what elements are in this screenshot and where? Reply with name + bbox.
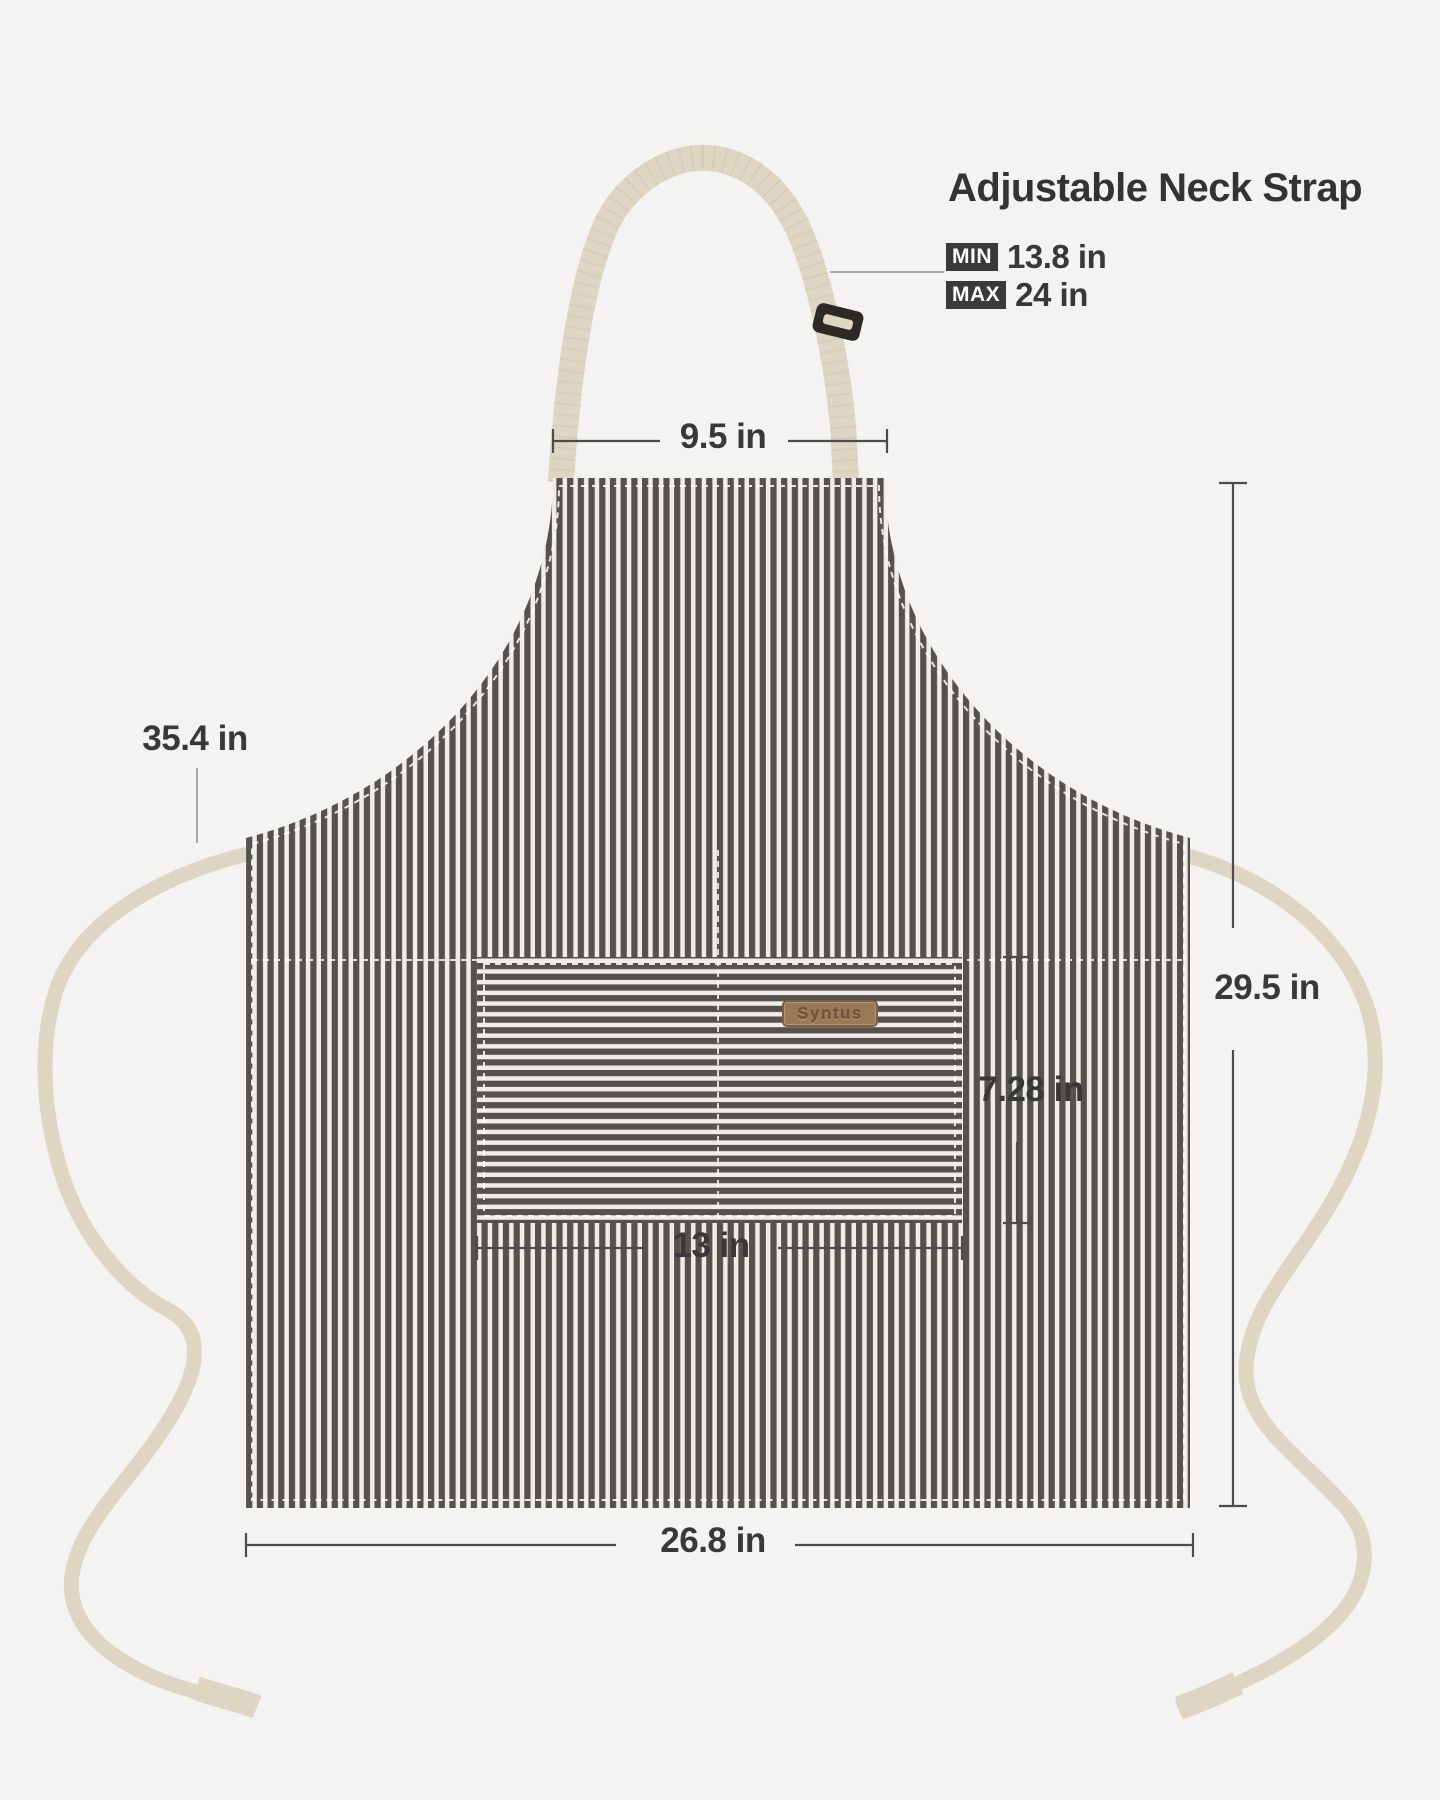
- left-tie-strap-tip: [196, 1688, 257, 1707]
- max-badge: MAX: [946, 281, 1006, 309]
- dim-label-height: 29.5 in: [1214, 968, 1319, 1008]
- right-tie-strap-tip: [1179, 1683, 1238, 1708]
- apron-pocket: [477, 957, 962, 1223]
- neck-strap-max-row: MAX 24 in: [946, 276, 1088, 314]
- dim-label-tie-length: 35.4 in: [142, 719, 247, 759]
- min-value: 13.8 in: [1007, 238, 1106, 276]
- diagram-title: Adjustable Neck Strap: [948, 166, 1362, 211]
- brand-label-patch: Syntus: [782, 1000, 878, 1027]
- dim-label-pocket-height: 7.28 in: [978, 1070, 1083, 1110]
- apron-dimension-diagram: Adjustable Neck Strap MIN 13.8 in MAX 24…: [0, 0, 1440, 1800]
- dim-label-width: 26.8 in: [660, 1521, 765, 1561]
- dim-label-neck-width: 9.5 in: [680, 417, 766, 457]
- min-badge: MIN: [946, 243, 998, 271]
- left-tie-strap: [45, 853, 256, 1707]
- dim-label-pocket-width: 13 in: [672, 1226, 749, 1266]
- neck-strap-min-row: MIN 13.8 in: [946, 238, 1106, 276]
- brand-label-text: Syntus: [797, 1004, 863, 1024]
- max-value: 24 in: [1015, 276, 1088, 314]
